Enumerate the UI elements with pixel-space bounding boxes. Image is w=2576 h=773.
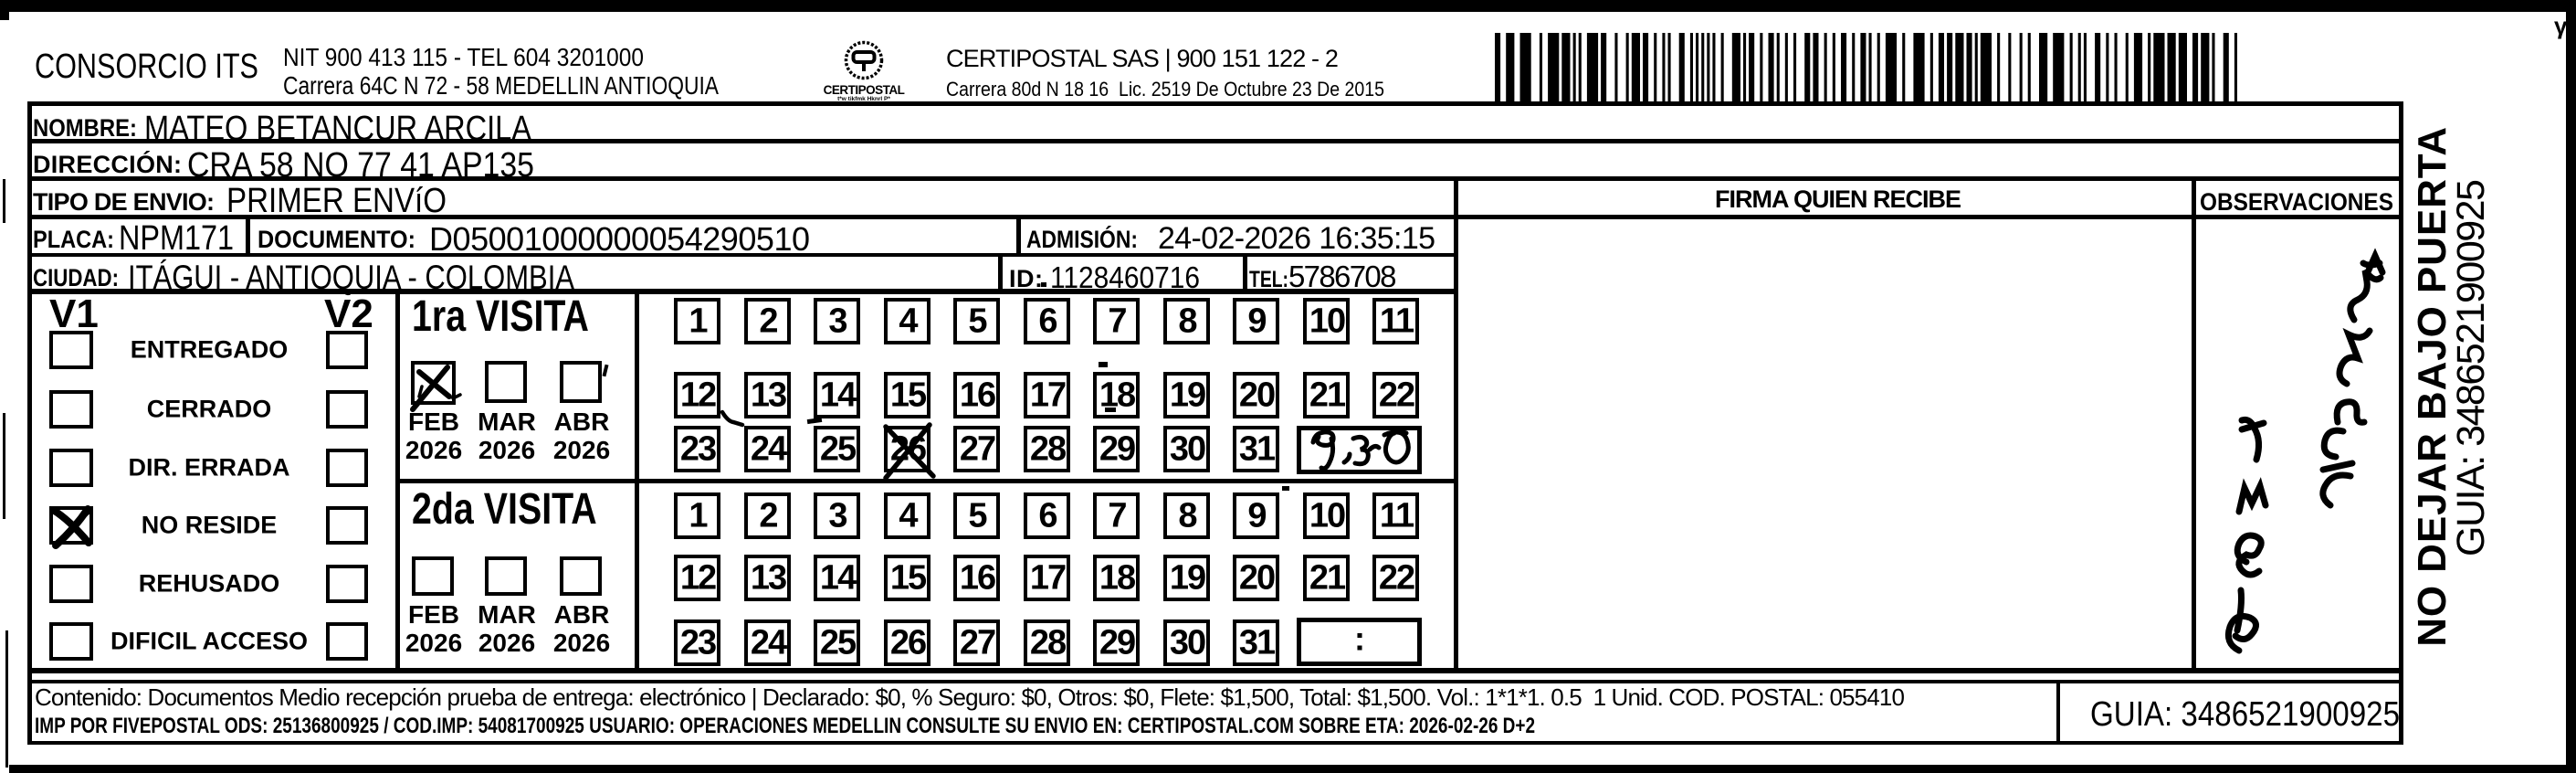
- svg-text:t*w tjkfmk Hknrl P*: t*w tjkfmk Hknrl P*: [837, 96, 890, 101]
- svg-text:CERTIPOSTAL: CERTIPOSTAL: [824, 83, 905, 97]
